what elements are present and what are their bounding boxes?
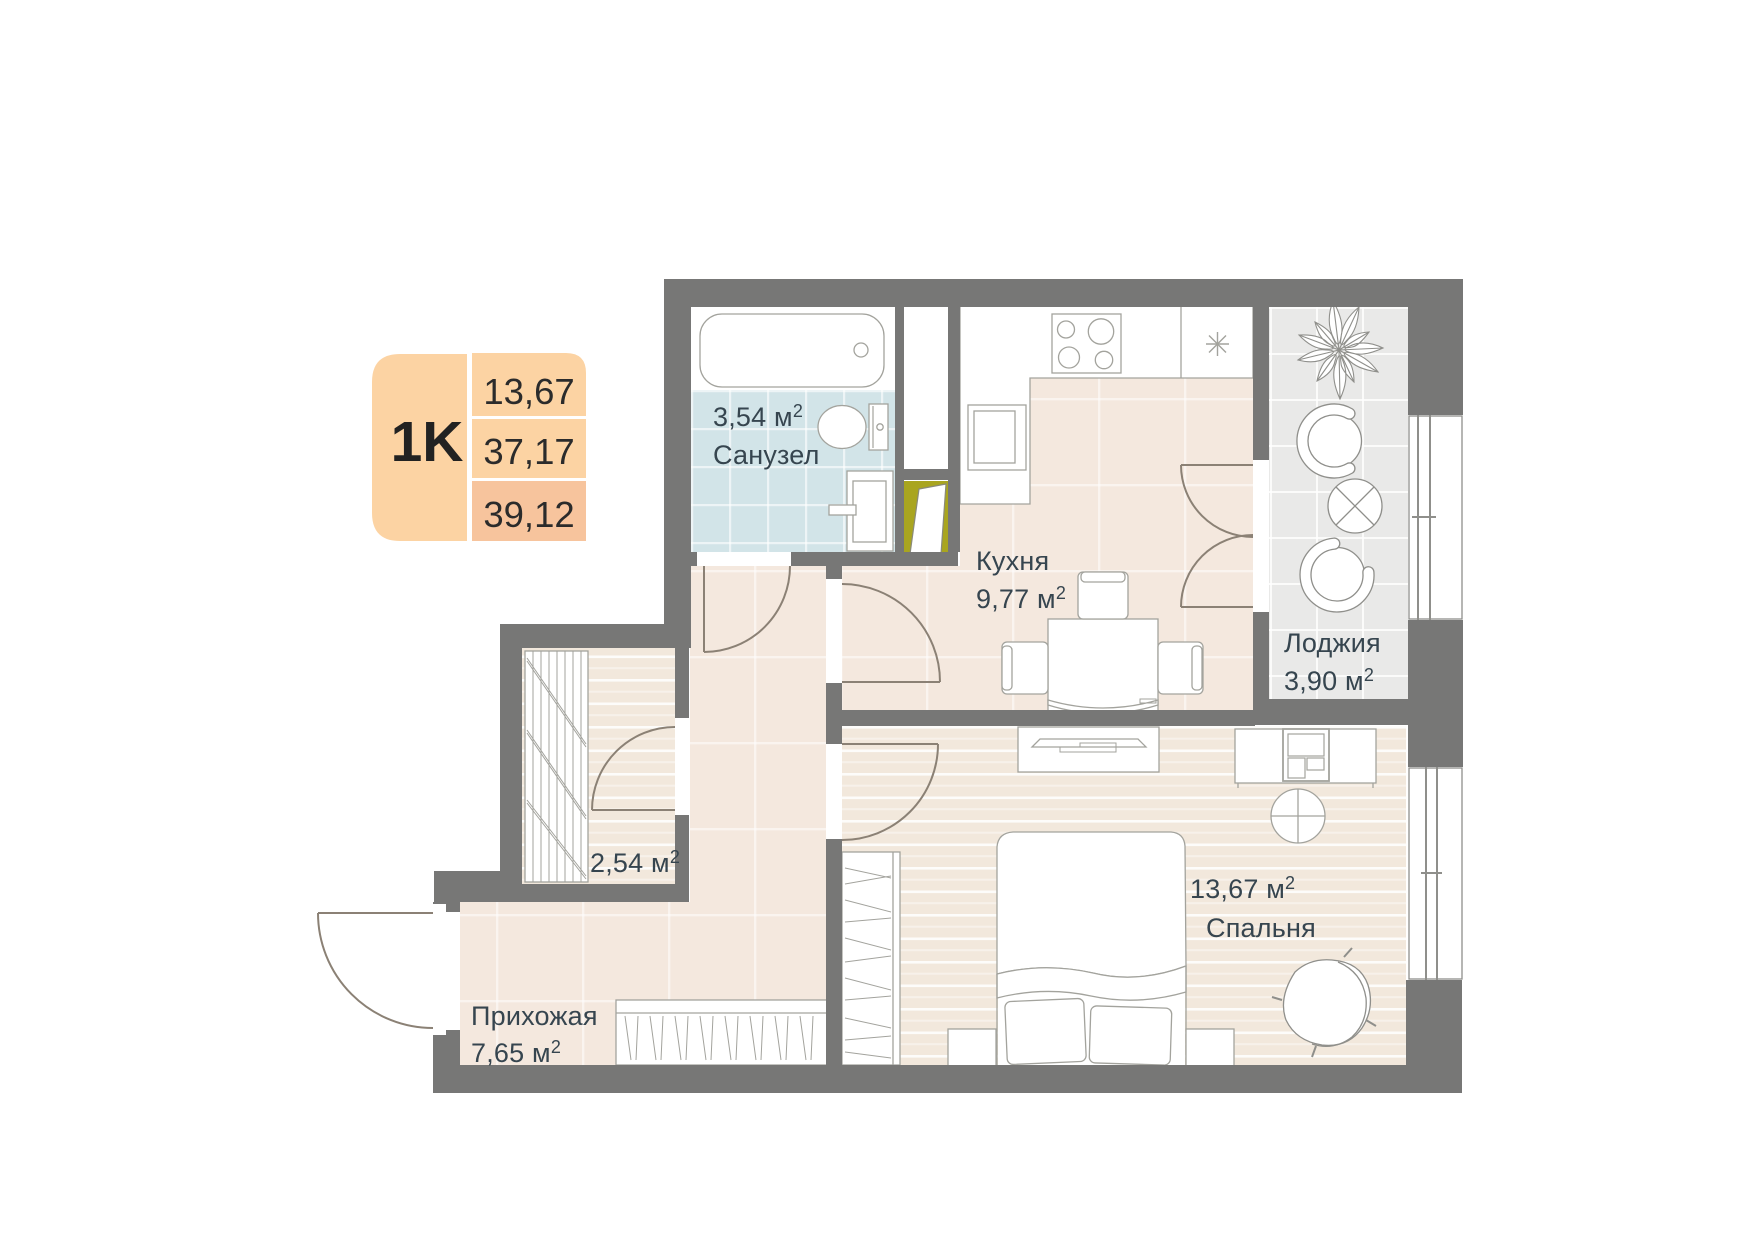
svg-text:Прихожая: Прихожая: [471, 1001, 598, 1031]
svg-text:3,54 м2: 3,54 м2: [713, 401, 803, 432]
svg-text:Лоджия: Лоджия: [1284, 628, 1381, 658]
svg-text:37,17: 37,17: [483, 431, 574, 472]
svg-text:Кухня: Кухня: [976, 546, 1049, 576]
svg-text:Спальня: Спальня: [1206, 913, 1316, 943]
svg-text:7,65 м2: 7,65 м2: [471, 1037, 561, 1068]
svg-text:2,54 м2: 2,54 м2: [590, 847, 680, 878]
svg-text:9,77 м2: 9,77 м2: [976, 583, 1066, 614]
svg-text:Санузел: Санузел: [713, 440, 820, 470]
svg-text:1K: 1K: [391, 410, 464, 474]
svg-text:13,67: 13,67: [483, 371, 574, 412]
svg-text:39,12: 39,12: [483, 494, 574, 535]
svg-text:3,90 м2: 3,90 м2: [1284, 665, 1374, 696]
svg-text:13,67 м2: 13,67 м2: [1190, 873, 1295, 904]
